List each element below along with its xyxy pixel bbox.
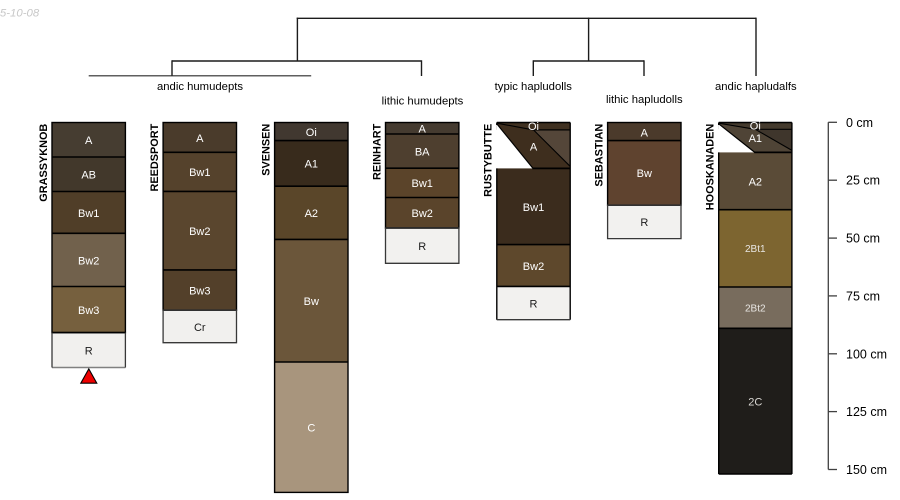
- svg-text:C: C: [307, 423, 315, 435]
- svg-text:R: R: [530, 299, 538, 311]
- svg-text:Bw3: Bw3: [78, 305, 99, 317]
- svg-text:REEDSPORT: REEDSPORT: [149, 123, 161, 191]
- svg-text:Bw2: Bw2: [189, 226, 210, 238]
- svg-text:andic hapludalfs: andic hapludalfs: [715, 81, 797, 93]
- svg-text:GRASSYKNOB: GRASSYKNOB: [38, 124, 50, 202]
- svg-text:Bw3: Bw3: [189, 285, 210, 297]
- svg-text:2Bt1: 2Bt1: [745, 244, 766, 255]
- svg-text:150 cm: 150 cm: [846, 463, 887, 477]
- svg-text:25 cm: 25 cm: [846, 174, 880, 188]
- svg-text:2Bt2: 2Bt2: [745, 303, 766, 314]
- svg-text:Bw: Bw: [637, 168, 652, 180]
- svg-text:A2: A2: [749, 176, 762, 188]
- svg-text:125 cm: 125 cm: [846, 405, 887, 419]
- svg-text:typic hapludolls: typic hapludolls: [495, 81, 573, 93]
- svg-text:2C: 2C: [748, 397, 762, 409]
- svg-text:A1: A1: [749, 133, 762, 145]
- svg-text:BA: BA: [415, 146, 430, 158]
- svg-text:0 cm: 0 cm: [846, 116, 873, 130]
- svg-text:Bw2: Bw2: [78, 255, 99, 267]
- svg-text:Bw1: Bw1: [78, 208, 99, 220]
- svg-text:SEBASTIAN: SEBASTIAN: [594, 124, 606, 187]
- svg-text:REINHART: REINHART: [371, 123, 383, 180]
- svg-text:50 cm: 50 cm: [846, 232, 880, 246]
- svg-text:100 cm: 100 cm: [846, 347, 887, 361]
- svg-text:Bw1: Bw1: [189, 167, 210, 179]
- svg-text:A2: A2: [305, 208, 318, 220]
- svg-text:2015-10-08: 2015-10-08: [0, 8, 40, 20]
- svg-text:andic humudepts: andic humudepts: [157, 81, 243, 93]
- svg-text:R: R: [418, 241, 426, 253]
- svg-text:R: R: [640, 217, 648, 229]
- svg-text:Oi: Oi: [750, 121, 761, 133]
- svg-text:A: A: [530, 142, 538, 154]
- svg-text:Bw: Bw: [304, 296, 319, 308]
- svg-text:75 cm: 75 cm: [846, 289, 880, 303]
- svg-text:Oi: Oi: [306, 127, 317, 139]
- svg-text:Bw1: Bw1: [523, 202, 544, 214]
- svg-text:A: A: [641, 127, 649, 139]
- svg-text:Cr: Cr: [194, 322, 206, 334]
- svg-text:Bw1: Bw1: [411, 178, 432, 190]
- svg-text:A1: A1: [305, 159, 318, 171]
- svg-text:RUSTYBUTTE: RUSTYBUTTE: [483, 124, 495, 197]
- svg-text:lithic humudepts: lithic humudepts: [382, 96, 464, 108]
- svg-text:lithic hapludolls: lithic hapludolls: [606, 94, 683, 106]
- svg-text:A: A: [196, 133, 204, 145]
- svg-text:HOOSKANADEN: HOOSKANADEN: [705, 124, 717, 211]
- svg-text:R: R: [85, 346, 93, 358]
- svg-text:Bw2: Bw2: [523, 261, 544, 273]
- svg-text:A: A: [85, 135, 93, 147]
- svg-text:AB: AB: [81, 170, 96, 182]
- svg-text:SVENSEN: SVENSEN: [261, 124, 273, 176]
- svg-text:Bw2: Bw2: [411, 208, 432, 220]
- svg-text:Oi: Oi: [528, 121, 539, 133]
- svg-text:A: A: [419, 124, 427, 136]
